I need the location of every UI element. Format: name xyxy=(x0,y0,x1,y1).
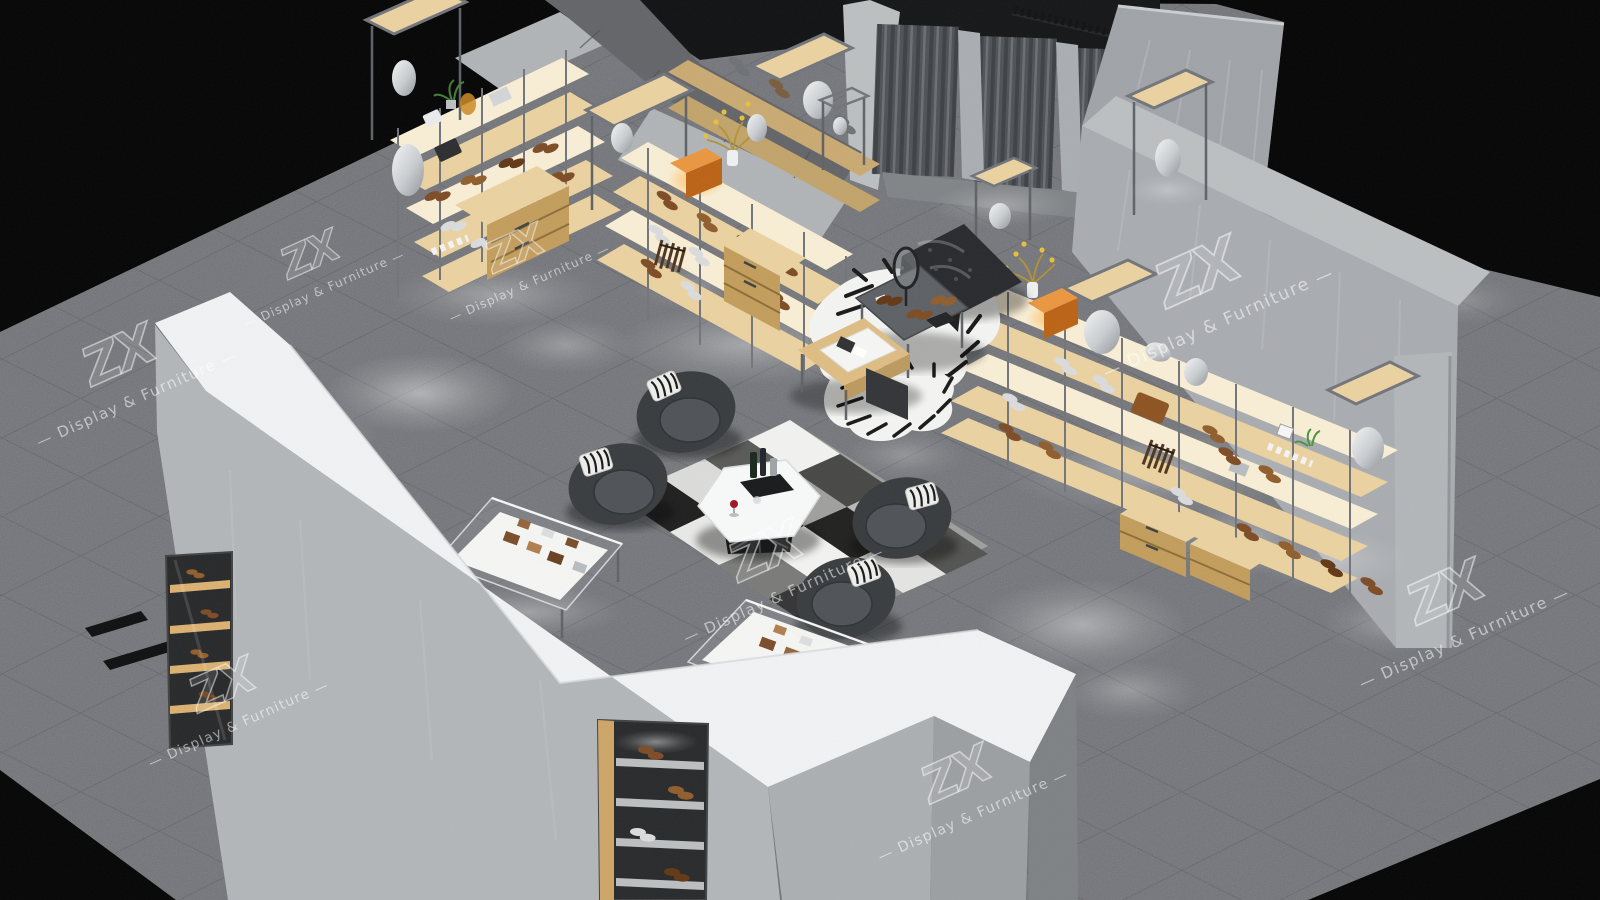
film-grain xyxy=(0,0,1600,900)
showroom-render: ZX — Display & Furniture — ZX — Display … xyxy=(0,0,1600,900)
